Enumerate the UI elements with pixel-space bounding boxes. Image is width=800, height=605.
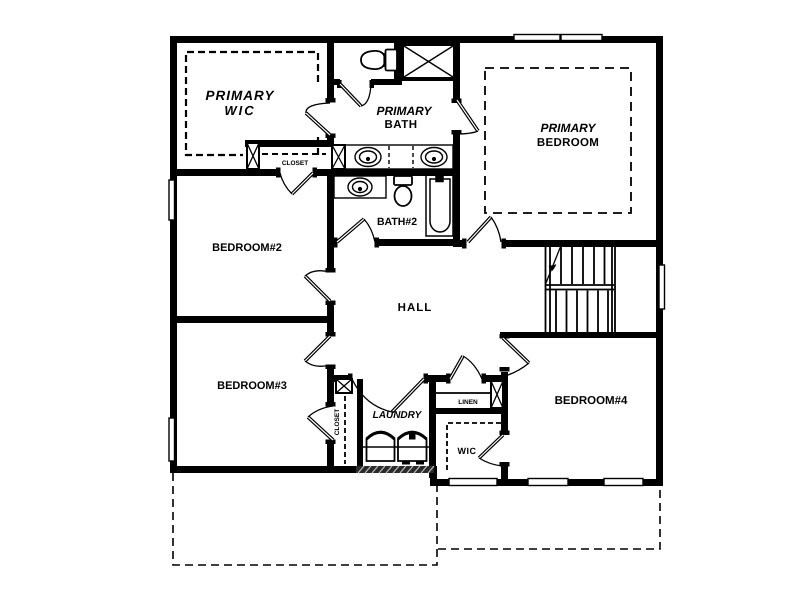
svg-text:BEDROOM: BEDROOM xyxy=(537,137,599,149)
svg-text:BEDROOM#4: BEDROOM#4 xyxy=(555,395,628,407)
svg-text:LINEN: LINEN xyxy=(458,399,478,406)
svg-text:WIC: WIC xyxy=(224,103,255,118)
svg-text:HALL: HALL xyxy=(398,302,433,314)
svg-text:CLOSET: CLOSET xyxy=(282,160,308,167)
svg-text:BATH: BATH xyxy=(384,119,417,131)
svg-text:CLOSET: CLOSET xyxy=(334,409,341,435)
svg-text:BEDROOM#3: BEDROOM#3 xyxy=(217,380,287,392)
svg-text:PRIMARY: PRIMARY xyxy=(376,104,432,118)
svg-text:LAUNDRY: LAUNDRY xyxy=(373,410,423,421)
svg-text:PRIMARY: PRIMARY xyxy=(540,121,596,135)
svg-text:BATH#2: BATH#2 xyxy=(377,216,417,228)
svg-text:BEDROOM#2: BEDROOM#2 xyxy=(212,242,282,254)
svg-text:WIC: WIC xyxy=(458,446,477,456)
svg-text:PRIMARY: PRIMARY xyxy=(205,88,275,103)
